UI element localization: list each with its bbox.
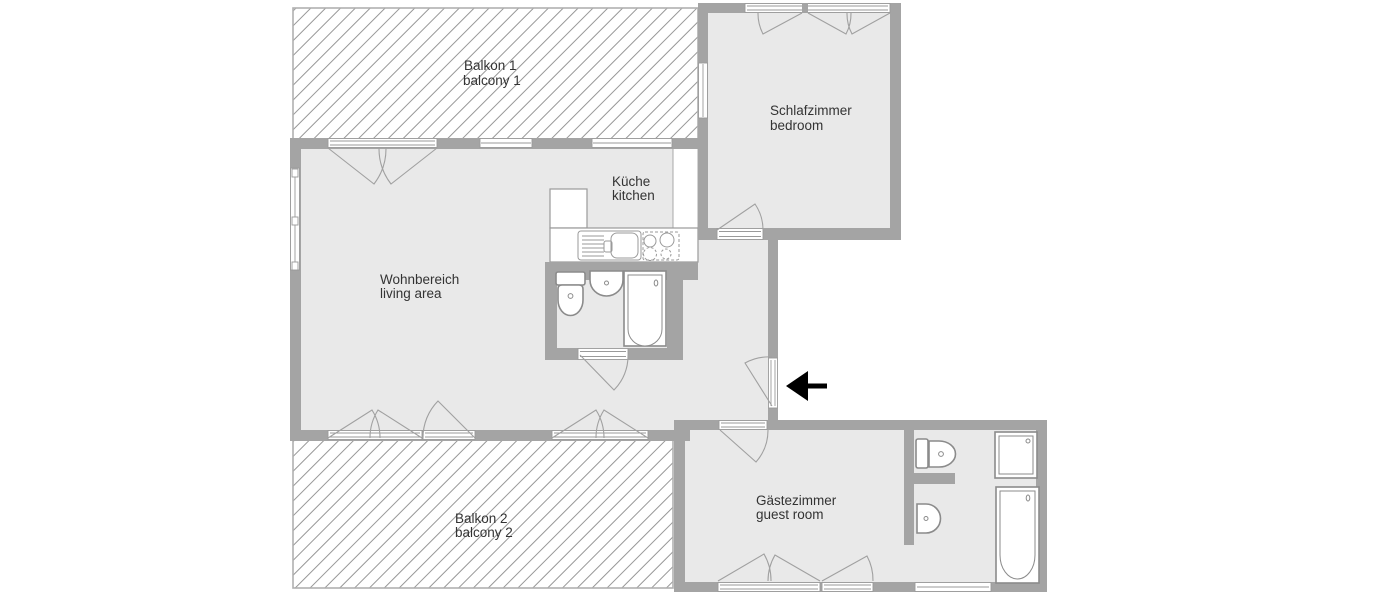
- floor-plan: Balkon 1 balcony 1 Schlafzimmer bedroom …: [0, 0, 1400, 600]
- entrance-door-threshold: [769, 358, 778, 408]
- floor-plan-canvas: Balkon 1 balcony 1 Schlafzimmer bedroom …: [0, 0, 1400, 600]
- label-balcony-1-en: balcony 1: [463, 73, 521, 88]
- window: [915, 583, 991, 592]
- label-kitchen-en: kitchen: [612, 188, 655, 203]
- label-bedroom-en: bedroom: [770, 118, 823, 133]
- label-bedroom-de: Schlafzimmer: [770, 103, 852, 118]
- balcony-door-threshold: [328, 139, 437, 148]
- toilet: [916, 439, 956, 468]
- window: [480, 139, 532, 148]
- door-threshold: [717, 229, 763, 240]
- window: [592, 139, 672, 148]
- label-kitchen-de: Küche: [612, 174, 650, 189]
- label-guest-en: guest room: [756, 507, 824, 522]
- label-balcony-2-en: balcony 2: [455, 525, 513, 540]
- balcony-door-threshold: [822, 583, 873, 592]
- washbasin: [917, 504, 941, 533]
- label-living-en: living area: [380, 286, 442, 301]
- entrance-arrow-icon: [786, 371, 827, 401]
- door-threshold: [719, 421, 767, 430]
- label-living-de: Wohnbereich: [380, 272, 459, 287]
- door-threshold: [578, 349, 628, 360]
- balcony-door-threshold: [718, 583, 820, 592]
- window: [291, 168, 300, 270]
- shower: [995, 432, 1037, 478]
- washbasin: [590, 271, 623, 296]
- balcony-door-threshold: [423, 431, 475, 440]
- balcony-door-threshold: [328, 431, 422, 440]
- window: [745, 3, 890, 13]
- label-guest-de: Gästezimmer: [756, 493, 837, 508]
- toilet: [556, 272, 585, 315]
- bathtub: [996, 487, 1039, 583]
- bathtub: [624, 271, 666, 346]
- fridge-cabinet: [550, 189, 587, 228]
- label-balcony-1-de: Balkon 1: [464, 58, 517, 73]
- balcony-door-threshold: [552, 431, 648, 440]
- label-balcony-2-de: Balkon 2: [455, 511, 508, 526]
- utility-column: [673, 148, 698, 228]
- window: [699, 63, 708, 118]
